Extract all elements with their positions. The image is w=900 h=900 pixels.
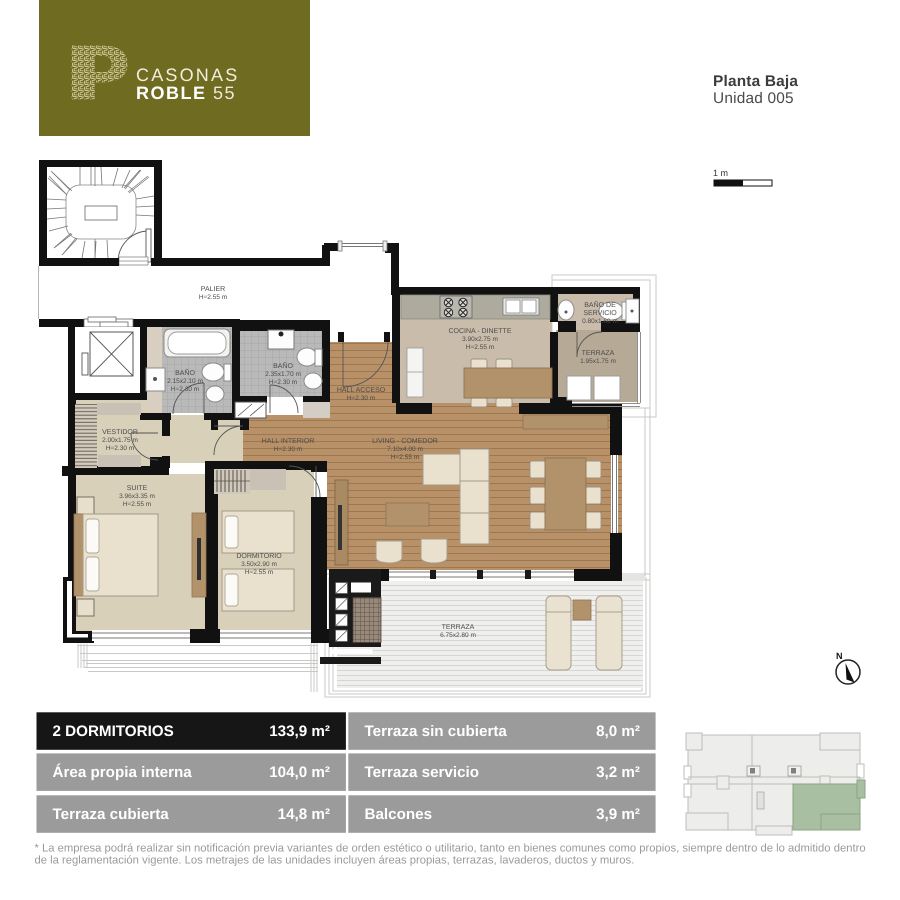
svg-text:COCINA - DINETTE: COCINA - DINETTE (448, 328, 511, 335)
svg-text:8,0 m²: 8,0 m² (596, 723, 640, 740)
svg-text:3.90x2.75 m: 3.90x2.75 m (462, 336, 498, 343)
svg-text:3,2 m²: 3,2 m² (596, 764, 640, 781)
svg-text:133,9 m²: 133,9 m² (269, 723, 330, 740)
svg-text:3.96x3.35 m: 3.96x3.35 m (119, 493, 155, 500)
svg-text:6.75x2.80 m: 6.75x2.80 m (440, 632, 476, 639)
svg-text:H=2.30 m: H=2.30 m (106, 445, 134, 452)
svg-text:7.10x4.00 m: 7.10x4.00 m (387, 446, 423, 453)
svg-text:3.50x2.90 m: 3.50x2.90 m (241, 561, 277, 568)
svg-text:de la reglamentación vigente.: de la reglamentación vigente. Los metraj… (35, 855, 635, 867)
svg-text:3,9 m²: 3,9 m² (596, 806, 640, 823)
svg-text:SUITE: SUITE (127, 485, 148, 492)
svg-text:HALL INTERIOR: HALL INTERIOR (262, 438, 315, 445)
svg-text:TERRAZA: TERRAZA (442, 624, 475, 631)
svg-text:2.35x1.70 m: 2.35x1.70 m (265, 371, 301, 378)
svg-text:Terraza sin cubierta: Terraza sin cubierta (365, 723, 508, 740)
svg-text:H=2.55 m: H=2.55 m (199, 294, 227, 301)
svg-text:Balcones: Balcones (365, 806, 433, 823)
svg-text:0.80x1.60 m: 0.80x1.60 m (582, 318, 618, 325)
svg-text:H=2.55 m: H=2.55 m (123, 501, 151, 508)
svg-text:N: N (836, 651, 843, 661)
svg-text:LIVING - COMEDOR: LIVING - COMEDOR (372, 438, 438, 445)
svg-text:H=2.55 m: H=2.55 m (466, 344, 494, 351)
svg-text:1.95x1.75 m: 1.95x1.75 m (580, 358, 616, 365)
svg-text:ROBLE 55: ROBLE 55 (136, 83, 236, 103)
svg-text:VESTIDOR: VESTIDOR (102, 429, 138, 436)
svg-text:Unidad 005: Unidad 005 (713, 90, 794, 107)
svg-text:CASONAS: CASONAS (136, 65, 239, 85)
svg-text:H=2.30 m: H=2.30 m (347, 395, 375, 402)
svg-text:SERVICIO: SERVICIO (583, 310, 617, 317)
svg-text:TERRAZA: TERRAZA (582, 350, 615, 357)
svg-text:H=2.30 m: H=2.30 m (269, 379, 297, 386)
svg-text:2 DORMITORIOS: 2 DORMITORIOS (53, 723, 174, 740)
svg-text:BAÑO: BAÑO (273, 361, 293, 370)
svg-text:H=2.30 m: H=2.30 m (171, 386, 199, 393)
svg-text:2.00x1.75 m: 2.00x1.75 m (102, 437, 138, 444)
svg-text:* La empresa podrá realizar si: * La empresa podrá realizar sin notifica… (35, 843, 866, 855)
svg-text:14,8 m²: 14,8 m² (278, 806, 330, 823)
svg-text:H=2.30 m: H=2.30 m (274, 446, 302, 453)
svg-text:104,0 m²: 104,0 m² (269, 764, 330, 781)
svg-text:H=2.55 m: H=2.55 m (391, 454, 419, 461)
svg-text:Terraza servicio: Terraza servicio (365, 764, 480, 781)
svg-text:DORMITORIO: DORMITORIO (236, 553, 282, 560)
svg-text:1 m: 1 m (713, 168, 728, 178)
svg-text:BAÑO DE: BAÑO DE (584, 300, 616, 309)
svg-text:Área propia interna: Área propia interna (53, 763, 193, 781)
svg-text:Planta Baja: Planta Baja (713, 73, 798, 90)
svg-text:Terraza cubierta: Terraza cubierta (53, 806, 170, 823)
svg-text:H=2.55 m: H=2.55 m (245, 569, 273, 576)
svg-text:BAÑO: BAÑO (175, 368, 195, 377)
svg-text:2.15x2.10 m: 2.15x2.10 m (167, 378, 203, 385)
svg-text:HALL ACCESO: HALL ACCESO (337, 387, 386, 394)
svg-text:PALIER: PALIER (201, 286, 225, 293)
